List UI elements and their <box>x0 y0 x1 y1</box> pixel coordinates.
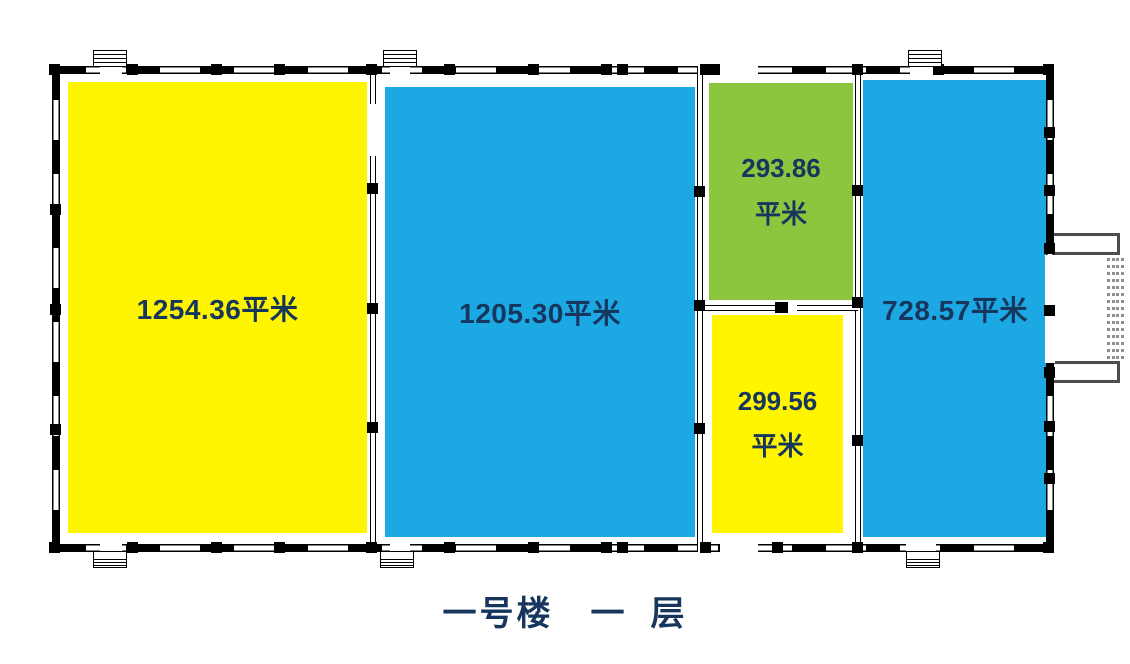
structural-column <box>274 64 285 75</box>
room-1254-label: 1254.36平米 <box>137 288 299 328</box>
floor-title: 一号楼 一 层 <box>0 586 1130 635</box>
structural-column <box>444 64 455 75</box>
structural-column <box>367 303 378 314</box>
structural-column <box>127 542 138 553</box>
structural-column <box>49 64 60 75</box>
entrance-steps <box>908 50 942 67</box>
structural-column <box>852 64 863 75</box>
room-293: 293.86平米 <box>709 83 853 300</box>
structural-column <box>366 542 377 553</box>
step-line <box>907 559 939 560</box>
entrance-steps <box>93 551 127 568</box>
structural-column <box>367 422 378 433</box>
structural-column <box>211 542 222 553</box>
structural-column <box>367 183 378 194</box>
step-line <box>381 562 413 563</box>
step-line <box>94 62 126 63</box>
structural-column <box>852 297 863 308</box>
dock-canopy-bottom <box>1054 361 1120 383</box>
step-line <box>94 559 126 560</box>
structural-column <box>709 64 720 75</box>
exterior-wall-top <box>52 66 1052 74</box>
room-1205: 1205.30平米 <box>385 87 695 537</box>
ramp-dot-line <box>1112 258 1115 361</box>
ramp-dot-line <box>1116 258 1119 361</box>
room-299-label: 299.56平米 <box>738 379 818 470</box>
dock-ramp-dots <box>1107 258 1124 361</box>
step-line <box>381 559 413 560</box>
entrance-steps <box>93 50 127 67</box>
structural-column <box>700 542 711 553</box>
ramp-dot-line <box>1107 258 1110 361</box>
structural-column <box>852 542 863 553</box>
room-293-label: 293.86平米 <box>741 146 821 237</box>
structural-column <box>1044 367 1055 378</box>
exterior-wall-bottom <box>52 544 1052 552</box>
entrance-steps <box>380 551 414 568</box>
structural-column <box>50 424 61 435</box>
structural-column <box>444 542 455 553</box>
structural-column <box>772 542 783 553</box>
step-line <box>909 58 941 59</box>
structural-column <box>211 64 222 75</box>
structural-column <box>127 64 138 75</box>
door-opening <box>369 104 376 156</box>
structural-column <box>1044 473 1055 484</box>
step-line <box>94 565 126 566</box>
structural-column <box>274 542 285 553</box>
structural-column <box>1044 243 1055 254</box>
step-line <box>384 62 416 63</box>
room-299: 299.56平米 <box>712 315 843 533</box>
room-728-label: 728.57平米 <box>882 289 1028 329</box>
step-line <box>907 565 939 566</box>
structural-column <box>1044 305 1055 316</box>
structural-column <box>50 204 61 215</box>
step-line <box>94 54 126 55</box>
room-728: 728.57平米 <box>863 80 1047 537</box>
structural-column <box>694 300 705 311</box>
structural-column <box>528 542 539 553</box>
structural-column <box>1044 185 1055 196</box>
step-line <box>907 562 939 563</box>
structural-column <box>617 542 628 553</box>
dock-canopy-top <box>1054 233 1120 255</box>
door-opening <box>720 65 758 75</box>
step-line <box>94 58 126 59</box>
structural-column <box>617 64 628 75</box>
room-1254: 1254.36平米 <box>68 82 367 533</box>
structural-column <box>852 435 863 446</box>
ramp-dot-line <box>1121 258 1124 361</box>
structural-column <box>49 542 60 553</box>
entrance-steps <box>906 551 940 568</box>
structural-column <box>601 64 612 75</box>
structural-column <box>366 64 377 75</box>
structural-column <box>1044 421 1055 432</box>
wall-segment <box>775 302 788 313</box>
structural-column <box>601 542 612 553</box>
door-opening <box>788 304 797 312</box>
structural-column <box>694 423 705 434</box>
floor-plan: 1254.36平米 1205.30平米 293.86平米 299.56平米 72… <box>0 0 1130 664</box>
structural-column <box>852 185 863 196</box>
entrance-steps <box>383 50 417 67</box>
structural-column <box>50 304 61 315</box>
step-line <box>909 62 941 63</box>
door-opening <box>720 543 758 553</box>
structural-column <box>1044 127 1055 138</box>
step-line <box>384 54 416 55</box>
structural-column <box>694 186 705 197</box>
step-line <box>381 565 413 566</box>
room-1205-label: 1205.30平米 <box>459 292 621 332</box>
step-line <box>384 58 416 59</box>
structural-column <box>528 64 539 75</box>
structural-column <box>1043 542 1054 553</box>
step-line <box>909 54 941 55</box>
step-line <box>94 562 126 563</box>
structural-column <box>1043 64 1054 75</box>
